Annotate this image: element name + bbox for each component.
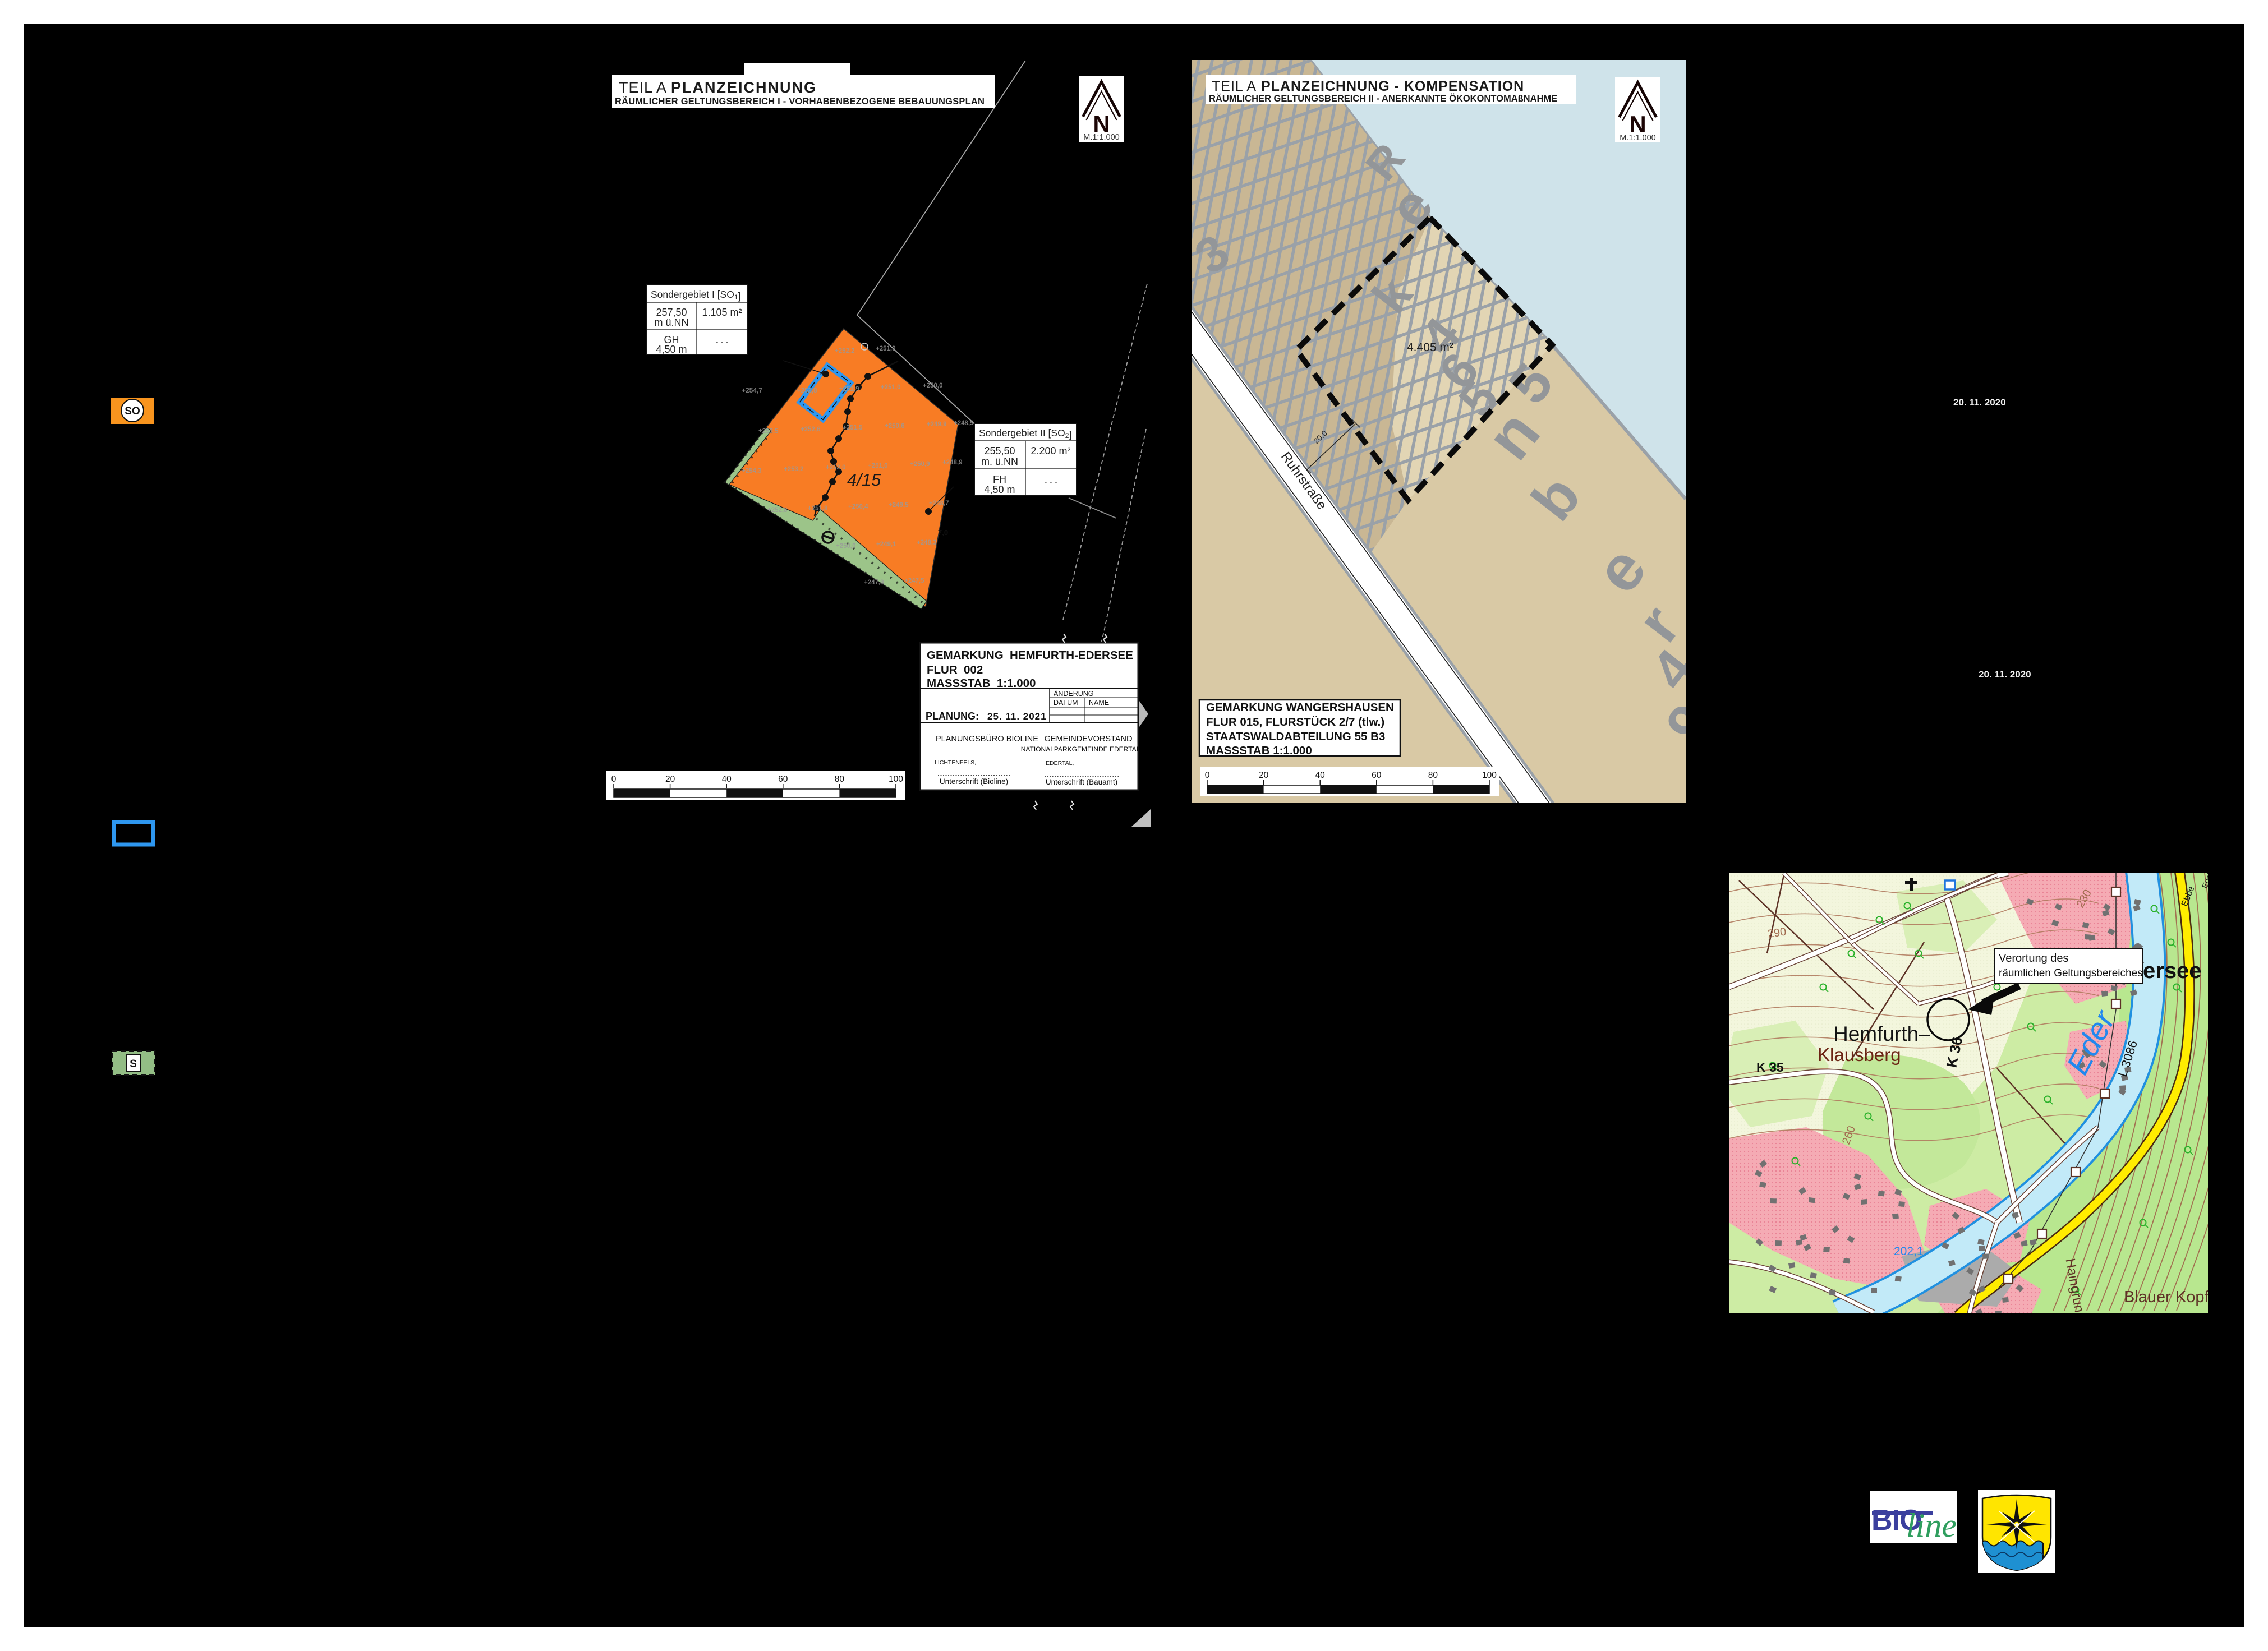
svg-text:4.405 m²: 4.405 m² (1407, 341, 1453, 354)
svg-text:TEIL A: TEIL A (619, 79, 667, 96)
svg-text:40: 40 (722, 774, 732, 784)
svg-text:1.105 m²: 1.105 m² (702, 307, 742, 318)
svg-text:PLANUNGSBÜRO BIOLINE: PLANUNGSBÜRO BIOLINE (936, 734, 1038, 744)
svg-text:+252,2: +252,2 (835, 348, 855, 354)
svg-text:Klausberg: Klausberg (1818, 1044, 1901, 1065)
svg-text:20: 20 (665, 774, 675, 784)
svg-text:+248,9: +248,9 (942, 459, 963, 466)
svg-text:MASSSTAB 1:1.000: MASSSTAB 1:1.000 (1206, 744, 1312, 757)
svg-text:0: 0 (611, 774, 617, 784)
svg-text:+253,2: +253,2 (784, 466, 804, 473)
svg-text:NATIONALPARKGEMEINDE EDERTAL: NATIONALPARKGEMEINDE EDERTAL (1021, 745, 1140, 753)
svg-text:202,1: 202,1 (1894, 1245, 1924, 1258)
svg-text:40: 40 (1315, 771, 1326, 780)
svg-text:+251,9: +251,9 (876, 345, 896, 352)
svg-text:20. 11. 2020: 20. 11. 2020 (1953, 397, 2006, 408)
svg-text:RÄUMLICHER GELTUNGSBEREICH I: RÄUMLICHER GELTUNGSBEREICH II - ANERKANN… (1209, 93, 1557, 104)
svg-text:Sondergebiet II [SO2]: Sondergebiet II [SO2] (979, 427, 1071, 440)
svg-text:+249,9: +249,9 (927, 421, 947, 428)
svg-text:Hemfurth–: Hemfurth– (1833, 1022, 1930, 1045)
svg-text:+250,4: +250,4 (848, 504, 868, 510)
svg-text:PLANZEICHNUNG - KOMPENSATION: PLANZEICHNUNG - KOMPENSATION (1261, 79, 1524, 94)
svg-text:+254,7: +254,7 (742, 386, 762, 394)
svg-text:100: 100 (889, 774, 903, 784)
svg-text:m ü.NN: m ü.NN (654, 317, 688, 328)
svg-text:60: 60 (778, 774, 788, 784)
svg-text:4,50 m: 4,50 m (656, 344, 687, 355)
svg-text:80: 80 (1428, 771, 1438, 780)
svg-text:TEIL A: TEIL A (1212, 79, 1257, 94)
svg-text:80: 80 (835, 774, 845, 784)
svg-text:GEMARKUNG HEMFURTH-EDERSEE: GEMARKUNG HEMFURTH-EDERSEE (927, 649, 1133, 662)
svg-text:Verortung des: Verortung des (1999, 952, 2069, 965)
svg-text:+248,7: +248,7 (929, 500, 949, 507)
svg-text:+250,0: +250,0 (923, 382, 943, 389)
svg-text:+250,9: +250,9 (910, 461, 930, 468)
svg-text:ÄNDERUNG: ÄNDERUNG (1054, 690, 1094, 698)
svg-text:25. 11. 2021: 25. 11. 2021 (987, 711, 1047, 722)
svg-text:+251,0: +251,0 (881, 384, 901, 391)
svg-text:+248,3: +248,3 (917, 539, 937, 546)
svg-text:7,0: 7,0 (938, 528, 948, 537)
svg-text:FH: FH (993, 474, 1006, 485)
svg-text:Unterschrift (Bioline): Unterschrift (Bioline) (940, 777, 1008, 786)
svg-text:+250,6: +250,6 (885, 423, 905, 430)
svg-text:SO: SO (125, 405, 140, 417)
svg-text:257,50: 257,50 (656, 307, 687, 318)
svg-text:M.1:1.000: M.1:1.000 (1620, 133, 1656, 142)
svg-text:60: 60 (1372, 771, 1382, 780)
svg-text:EDERTAL,: EDERTAL, (1046, 760, 1074, 767)
svg-text:PLANZEICHNUNG: PLANZEICHNUNG (671, 79, 817, 96)
svg-text:FLUR 002: FLUR 002 (927, 663, 983, 676)
svg-text:NAME: NAME (1089, 699, 1109, 707)
svg-text:+251,0: +251,0 (868, 463, 888, 469)
svg-text:Blauer Kopf: Blauer Kopf (2124, 1288, 2209, 1306)
svg-text:+253,5: +253,5 (758, 428, 779, 435)
svg-text:2.200 m²: 2.200 m² (1031, 445, 1070, 456)
svg-text:+251,9: +251,9 (839, 386, 859, 393)
svg-text:m. ü.NN: m. ü.NN (981, 456, 1018, 467)
svg-text:GEMARKUNG WANGERSHAUSEN: GEMARKUNG WANGERSHAUSEN (1206, 701, 1394, 714)
svg-text:+249,1: +249,1 (876, 541, 896, 548)
svg-text:line: line (1906, 1507, 1957, 1544)
svg-text:4,50 m: 4,50 m (984, 484, 1015, 495)
svg-text:+249,5: +249,5 (889, 502, 909, 509)
svg-text:100: 100 (1482, 771, 1497, 780)
svg-text:LICHTENFELS,: LICHTENFELS, (935, 759, 976, 766)
svg-text:+252,6: +252,6 (801, 426, 821, 433)
svg-text:+251,5: +251,5 (843, 425, 863, 431)
svg-text:ersee: ersee (2143, 958, 2202, 983)
svg-text:S: S (130, 1058, 137, 1070)
svg-text:0: 0 (1205, 771, 1210, 780)
svg-text:RÄUMLICHER GELTUNGSBEREICH I -: RÄUMLICHER GELTUNGSBEREICH I - VORHABENB… (615, 96, 985, 107)
svg-text:Unterschrift (Bauamt): Unterschrift (Bauamt) (1046, 778, 1117, 786)
svg-text:290: 290 (1767, 926, 1787, 940)
svg-text:- - -: - - - (715, 338, 728, 347)
svg-text:M.1:1.000: M.1:1.000 (1083, 133, 1120, 142)
svg-text:K 35: K 35 (1756, 1060, 1784, 1074)
svg-text:DATUM: DATUM (1054, 699, 1078, 707)
svg-text:255,50: 255,50 (984, 445, 1015, 456)
svg-text:20: 20 (1259, 771, 1269, 780)
svg-text:GEMEINDEVORSTAND: GEMEINDEVORSTAND (1045, 735, 1133, 744)
svg-text:+250,0: +250,0 (836, 543, 856, 550)
svg-text:+248,9: +248,9 (954, 420, 974, 427)
svg-text:20. 11. 2020: 20. 11. 2020 (1979, 669, 2031, 680)
svg-text:+247,5: +247,5 (904, 578, 924, 584)
svg-text:- - -: - - - (1044, 477, 1057, 487)
svg-text:+254,3: +254,3 (742, 468, 762, 474)
svg-text:PLANUNG:: PLANUNG: (926, 711, 979, 722)
svg-text:+252,8: +252,8 (767, 507, 788, 514)
svg-text:Sondergebiet I [SO1]: Sondergebiet I [SO1] (651, 289, 740, 302)
svg-text:FLUR 015, FLURSTÜCK 2/7 (t: FLUR 015, FLURSTÜCK 2/7 (tlw.) (1206, 716, 1384, 728)
svg-text:räumlichen Geltungsbereiches: räumlichen Geltungsbereiches (1999, 967, 2143, 979)
svg-text:+251,8: +251,8 (808, 505, 828, 512)
svg-text:MASSSTAB 1:1.000: MASSSTAB 1:1.000 (927, 677, 1036, 690)
svg-text:+252,8: +252,8 (797, 388, 817, 394)
svg-text:+247,8: +247,8 (864, 579, 884, 586)
svg-text:+252,0: +252,0 (826, 464, 846, 471)
svg-text:STAATSWALDABTEILUNG 55 B3: STAATSWALDABTEILUNG 55 B3 (1206, 730, 1385, 743)
svg-text:4/15: 4/15 (847, 470, 881, 490)
